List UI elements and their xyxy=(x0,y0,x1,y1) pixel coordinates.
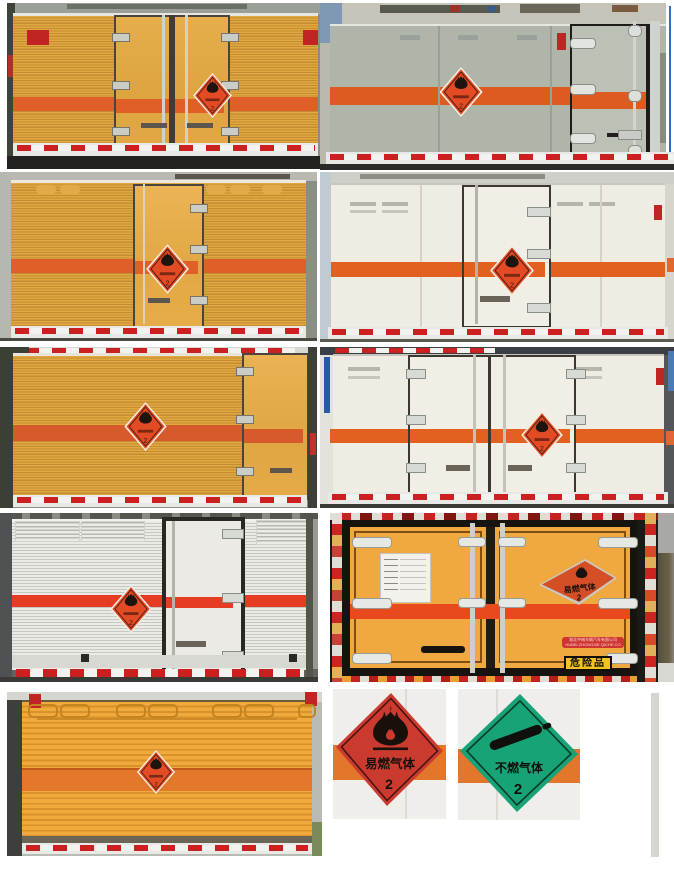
svg-text:2: 2 xyxy=(510,280,514,289)
svg-text:2: 2 xyxy=(514,781,522,798)
svg-text:2: 2 xyxy=(459,102,463,111)
svg-text:2: 2 xyxy=(129,620,133,627)
svg-text:2: 2 xyxy=(144,438,148,445)
svg-text:易燃气体: 易燃气体 xyxy=(365,756,416,771)
svg-text:2: 2 xyxy=(211,106,215,113)
svg-text:2: 2 xyxy=(154,782,158,789)
svg-text:2: 2 xyxy=(385,776,393,792)
svg-text:2: 2 xyxy=(540,446,544,453)
svg-text:不燃气体: 不燃气体 xyxy=(495,760,544,775)
svg-text:2: 2 xyxy=(166,280,170,288)
svg-text:2: 2 xyxy=(577,594,582,603)
